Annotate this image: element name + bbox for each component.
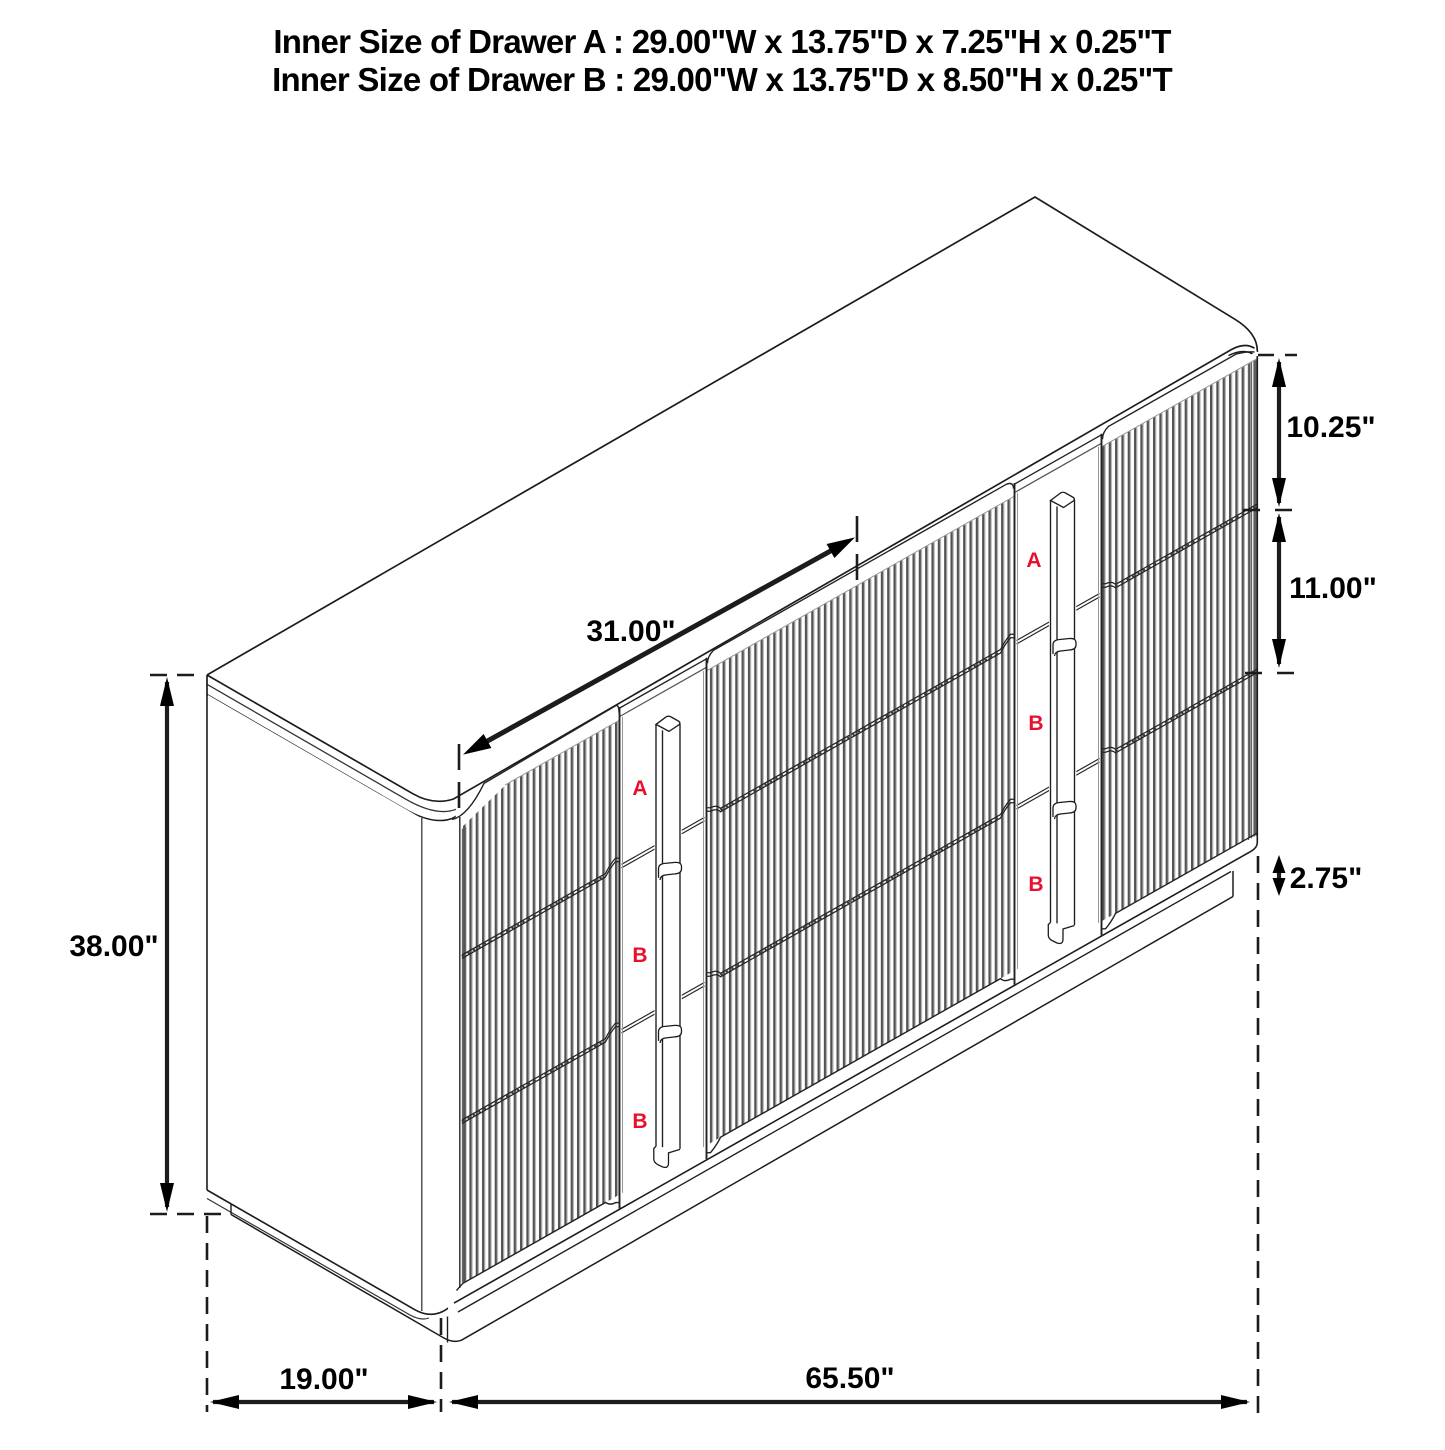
svg-text:B: B	[632, 1110, 647, 1133]
svg-text:B: B	[632, 944, 647, 967]
svg-text:11.00": 11.00"	[1289, 572, 1377, 605]
svg-text:Inner Size of Drawer A : 29.00: Inner Size of Drawer A : 29.00"W x 13.75…	[273, 23, 1171, 60]
svg-text:65.50": 65.50"	[805, 1362, 894, 1395]
svg-text:31.00": 31.00"	[586, 615, 675, 648]
svg-text:19.00": 19.00"	[279, 1363, 368, 1396]
svg-text:B: B	[1028, 873, 1043, 896]
svg-text:2.75": 2.75"	[1290, 862, 1363, 895]
svg-text:A: A	[632, 777, 647, 800]
svg-text:38.00": 38.00"	[69, 930, 158, 963]
svg-text:B: B	[1028, 712, 1043, 735]
svg-text:A: A	[1026, 549, 1041, 572]
svg-text:Inner Size of Drawer B : 29.00: Inner Size of Drawer B : 29.00"W x 13.75…	[272, 61, 1172, 98]
svg-text:10.25": 10.25"	[1286, 411, 1375, 444]
